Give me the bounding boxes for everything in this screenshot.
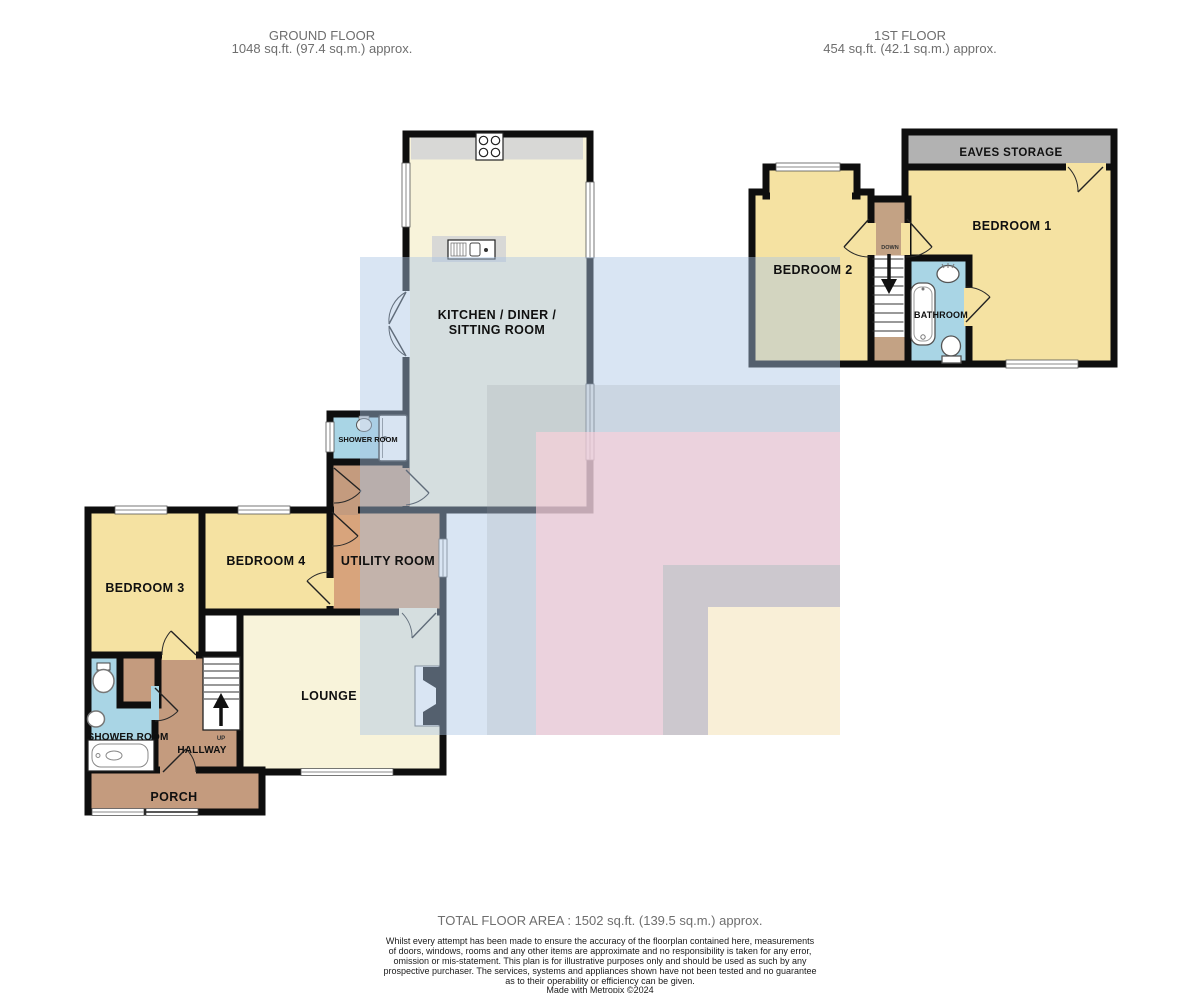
- door-gap-bedroom3: [162, 650, 196, 660]
- landing-bottom: [875, 337, 905, 361]
- door-gap-vestibule-utility: [334, 505, 358, 515]
- room-kitchen: [406, 134, 590, 510]
- room-bedroom2: [752, 192, 871, 364]
- total-floor-area: TOTAL FLOOR AREA : 1502 sq.ft. (139.5 sq…: [438, 913, 763, 928]
- disclaimer-line-3: omission or mis-statement. This plan is …: [393, 956, 807, 966]
- credit-line: Made with Metropix ©2024: [546, 985, 653, 993]
- basin-icon: [357, 416, 372, 432]
- window-icon: [326, 422, 334, 452]
- first-floor-plan: [752, 132, 1114, 368]
- floorplan-canvas: GROUND FLOOR 1048 sq.ft. (97.4 sq.m.) ap…: [0, 0, 1200, 993]
- label-shower-room-bl: SHOWER ROOM: [87, 732, 168, 743]
- label-bedroom1: BEDROOM 1: [972, 219, 1051, 233]
- label-bathroom: BATHROOM: [914, 310, 968, 320]
- window-icon: [92, 809, 144, 816]
- disclaimer-line-2: of doors, windows, rooms and any other i…: [389, 946, 812, 956]
- door-gap-bedroom1-landing: [901, 223, 910, 255]
- label-eaves-storage: EAVES STORAGE: [959, 147, 1062, 159]
- label-kitchen-line1: KITCHEN / DINER /: [438, 308, 557, 322]
- window-icon: [776, 163, 840, 171]
- door-gap-bedroom2: [867, 223, 876, 255]
- disclaimer-line-4: prospective purchaser. The services, sys…: [383, 966, 816, 976]
- window-icon: [586, 384, 594, 460]
- hob-icon: [476, 133, 503, 160]
- door-gap-utility-lounge: [399, 608, 437, 616]
- first-floor-area: 454 sq.ft. (42.1 sq.m.) approx.: [823, 41, 996, 56]
- label-bedroom3: BEDROOM 3: [105, 581, 184, 595]
- toilet-icon: [942, 336, 962, 363]
- bedroom2-join: [770, 189, 852, 200]
- disclaimer-line-1: Whilst every attempt has been made to en…: [386, 936, 815, 946]
- floorplan-page: GROUND FLOOR 1048 sq.ft. (97.4 sq.m.) ap…: [0, 0, 1200, 993]
- label-stairs-down: DOWN: [881, 245, 898, 251]
- window-icon: [238, 506, 290, 514]
- label-bedroom4: BEDROOM 4: [226, 554, 305, 568]
- window-icon: [301, 769, 393, 776]
- shower-tray-icon: [88, 740, 154, 771]
- window-icon: [439, 539, 447, 577]
- label-hallway: HALLWAY: [177, 745, 226, 756]
- window-icon: [1006, 360, 1078, 368]
- basin-icon: [88, 711, 105, 727]
- window-icon: [115, 506, 167, 514]
- front-door: [146, 809, 198, 816]
- fireplace-icon: [415, 666, 446, 726]
- ground-floor-area: 1048 sq.ft. (97.4 sq.m.) approx.: [232, 41, 413, 56]
- label-porch: PORCH: [150, 790, 197, 804]
- door-gap-porch-hall: [160, 766, 196, 776]
- door-gap-kitchen-double: [402, 291, 410, 357]
- label-kitchen-line2: SITTING ROOM: [449, 323, 545, 337]
- label-utility: UTILITY ROOM: [341, 554, 435, 568]
- ground-floor-plan: [88, 133, 595, 816]
- label-stairs-up: UP: [217, 736, 225, 742]
- window-icon: [402, 163, 410, 227]
- label-shower-room-mid: SHOWER ROOM: [338, 435, 397, 444]
- stairs-up: [203, 657, 240, 730]
- window-icon: [586, 182, 594, 258]
- label-bedroom2: BEDROOM 2: [773, 263, 852, 277]
- kitchen-sink-icon: [432, 236, 506, 262]
- overlay-cream: [708, 607, 840, 735]
- overlay-gray2: [663, 565, 840, 735]
- label-lounge: LOUNGE: [301, 689, 357, 703]
